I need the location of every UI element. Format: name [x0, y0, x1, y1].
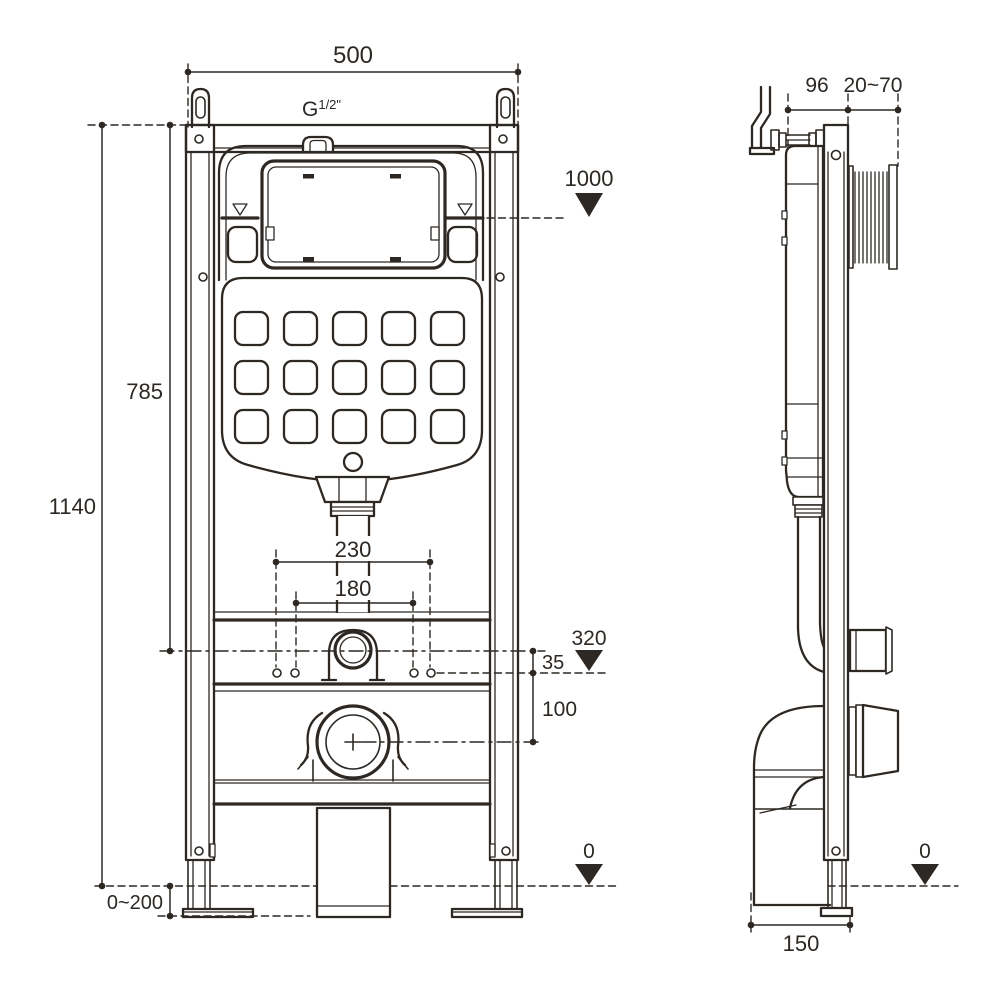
dim-0-200-label: 0~200	[107, 892, 163, 914]
side-frame-bar	[824, 125, 848, 860]
water-level-icon	[233, 204, 247, 215]
dim-150-label: 150	[783, 931, 820, 956]
frame-hole	[502, 847, 510, 855]
page: 500 G1/2" 1000 785 1140 230 180 320 35 1…	[0, 0, 1000, 1000]
frame-hole	[496, 273, 504, 281]
frame-hole	[195, 847, 203, 855]
side-foot	[821, 860, 852, 916]
cistern-side	[782, 146, 823, 497]
flush-plate-window	[262, 161, 445, 268]
frame-hole	[195, 135, 203, 143]
side-view	[750, 87, 898, 916]
datum-triangle-0-side	[911, 864, 939, 885]
frame-hole	[199, 273, 207, 281]
flush-bend-fitting	[322, 630, 384, 680]
floor-datum-front-label: 0	[583, 840, 595, 863]
floor-datum-side-label: 0	[919, 840, 931, 863]
water-inlet-cap	[303, 137, 333, 152]
water-level-icon	[458, 204, 472, 215]
wall-bracket	[750, 87, 824, 154]
thread-size-label: G1/2"	[302, 97, 341, 121]
technical-drawing: 500 G1/2" 1000 785 1140 230 180 320 35 1…	[0, 0, 1000, 1000]
waste-outlet	[298, 706, 408, 781]
wall-anchor-brackets	[192, 89, 514, 127]
tank-plug	[344, 453, 362, 471]
dim-320-label: 320	[571, 627, 606, 650]
datum-triangle-320	[575, 650, 603, 671]
datum-triangle-0-front	[575, 864, 603, 885]
dim-96-label: 96	[805, 74, 828, 97]
dim-20-70-label: 20~70	[844, 74, 903, 97]
outlet-duct	[317, 808, 390, 917]
cistern-tank	[222, 278, 482, 482]
dim-785-label: 785	[126, 379, 163, 404]
connection-stubs	[849, 627, 898, 777]
frame-hole	[499, 135, 507, 143]
dim-230-label: 230	[335, 537, 372, 562]
datum-triangle-1000	[575, 193, 603, 217]
access-sleeve	[849, 165, 897, 269]
dim-100-label: 100	[542, 698, 577, 721]
dim-1000-label: 1000	[565, 166, 614, 191]
front-view	[183, 89, 522, 917]
dim-35-label: 35	[542, 652, 564, 674]
dim-180-label: 180	[335, 576, 372, 601]
flush-pipe-side	[793, 497, 826, 672]
waste-bend	[754, 706, 830, 905]
dim-1140-label: 1140	[49, 494, 96, 519]
dim-500-label: 500	[333, 42, 373, 69]
